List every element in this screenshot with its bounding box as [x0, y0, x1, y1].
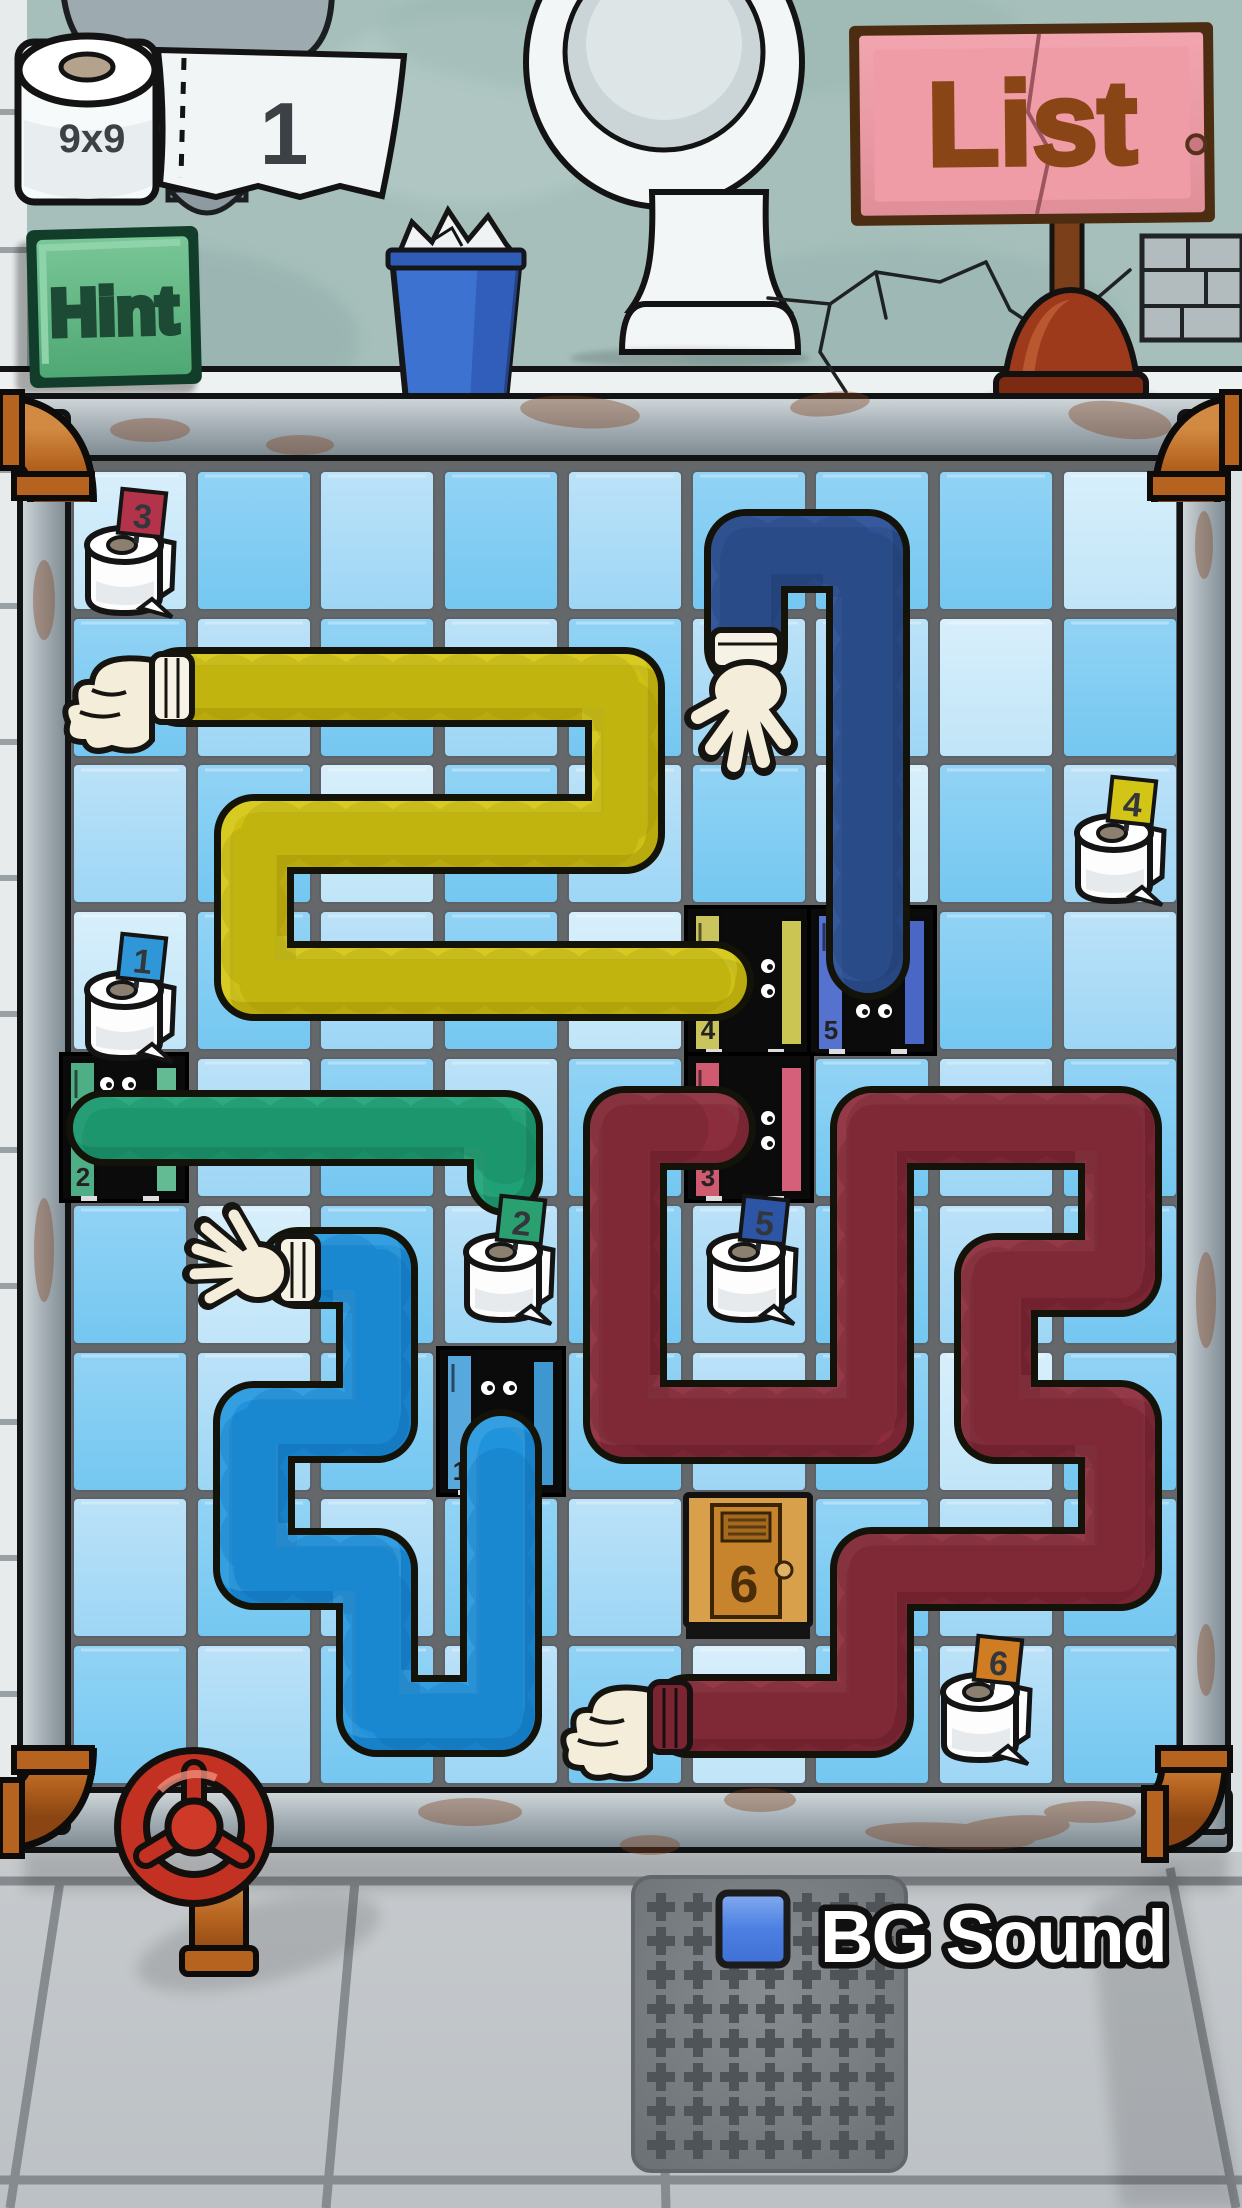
svg-text:4: 4: [1121, 785, 1144, 825]
svg-text:3: 3: [131, 497, 154, 537]
svg-text:2: 2: [76, 1162, 90, 1192]
svg-text:Hint: Hint: [49, 272, 179, 349]
svg-text:6: 6: [730, 1556, 759, 1614]
svg-text:1: 1: [260, 84, 309, 183]
svg-text:BG Sound: BG Sound: [820, 1895, 1166, 1978]
svg-text:9x9: 9x9: [59, 117, 126, 161]
svg-text:6: 6: [987, 1644, 1010, 1684]
svg-text:2: 2: [510, 1204, 533, 1244]
svg-text:List: List: [926, 57, 1137, 191]
svg-text:5: 5: [753, 1204, 776, 1244]
svg-text:1: 1: [131, 942, 154, 982]
svg-text:5: 5: [824, 1015, 838, 1045]
